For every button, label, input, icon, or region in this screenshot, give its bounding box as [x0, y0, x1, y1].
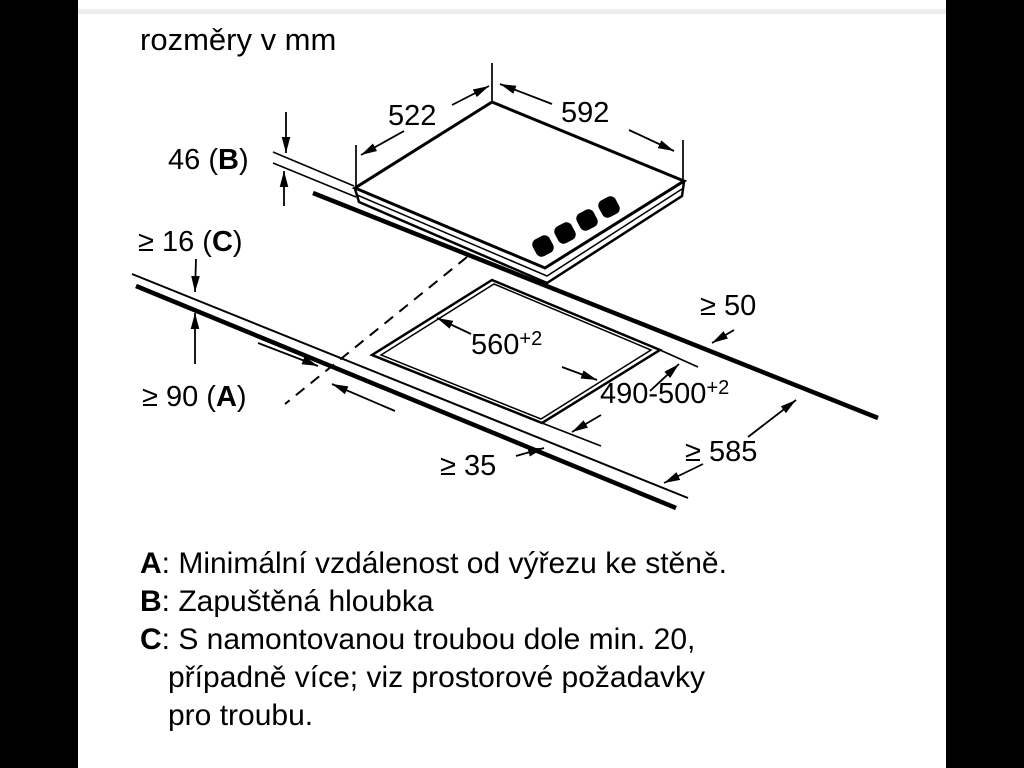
- dim-label-35: ≥ 35: [440, 451, 496, 481]
- legend-row-c-cont: případně více; viz prostorové požadavky: [168, 661, 705, 695]
- dim-label-560: 560+2: [471, 330, 542, 360]
- legend-row-c-cont2: pro troubu.: [168, 699, 313, 733]
- dim-label-592: 592: [561, 98, 609, 128]
- dim-label-16-c: ≥ 16 (C): [138, 227, 243, 257]
- legend-row-c: C: S namontovanou troubou dole min. 20,: [140, 623, 695, 657]
- dim-label-90-a: ≥ 90 (A): [142, 382, 247, 412]
- dim-label-522: 522: [388, 101, 436, 131]
- top-divider: [78, 9, 946, 14]
- dim-label-585: ≥ 585: [685, 437, 757, 467]
- dim-label-490-500: 490-500+2: [600, 379, 729, 409]
- dim-label-46-b: 46 (B): [168, 145, 249, 175]
- dim-label-50: ≥ 50: [700, 291, 756, 321]
- dim-522-value: 522: [388, 100, 436, 132]
- dim-592-value: 592: [561, 97, 609, 129]
- legend-row-b: B: Zapuštěná hloubka: [140, 585, 434, 619]
- legend-row-a: A: Minimální vzdálenost od výřezu ke stě…: [140, 547, 727, 581]
- document-page: { "colors": { "page_bg": "#000000", "can…: [0, 0, 1024, 768]
- page-title: rozměry v mm: [140, 22, 336, 58]
